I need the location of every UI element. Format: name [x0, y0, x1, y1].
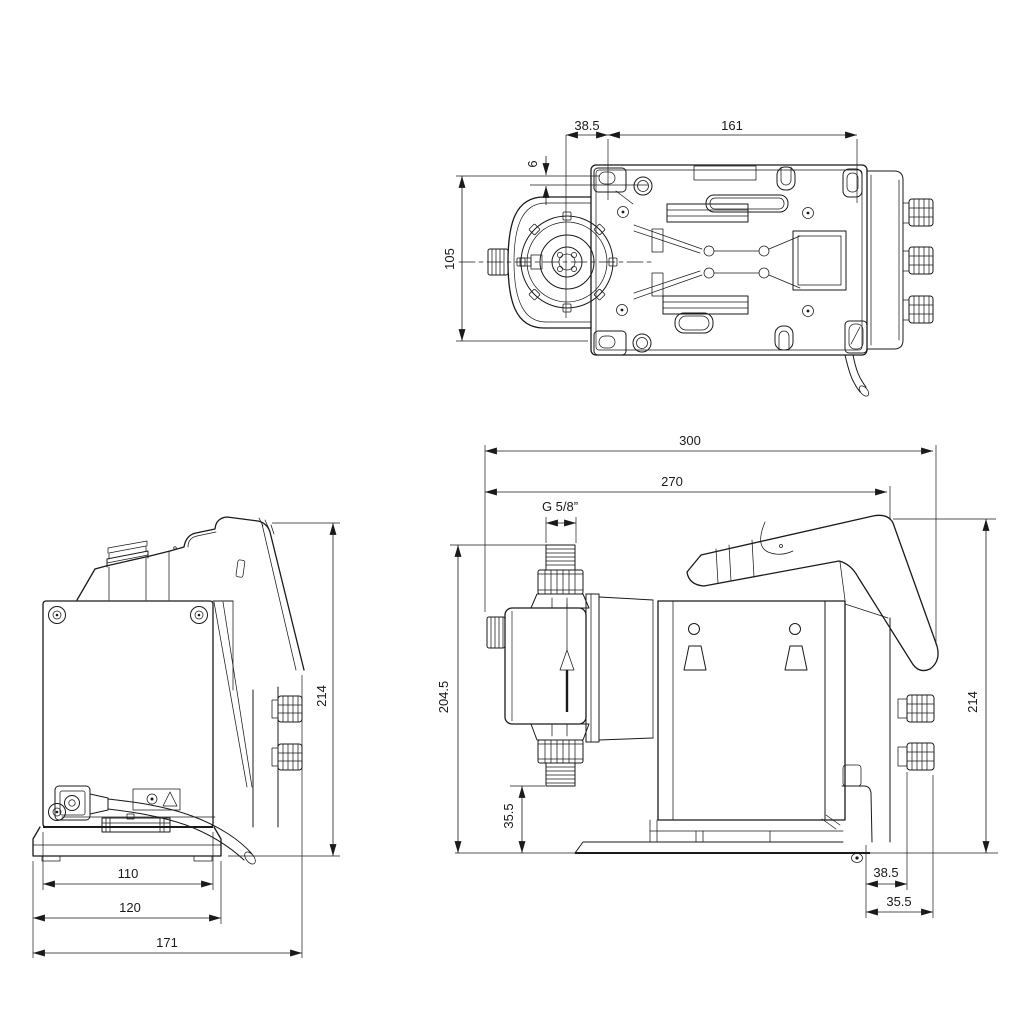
knob-ridges — [278, 744, 302, 770]
pump-body — [599, 597, 845, 842]
panel-face-seams — [716, 522, 845, 600]
dimension-171: 171 — [33, 675, 302, 958]
roof-seams — [109, 532, 216, 600]
dimension-204-5: 204.5 — [436, 545, 546, 853]
dimension-thread: G 5/8” — [542, 499, 578, 543]
dimension-214-right: 214 — [893, 519, 996, 853]
vent-valve-knob — [487, 617, 505, 648]
rear-bracket — [867, 171, 903, 349]
foot-pad — [42, 856, 60, 861]
nut-knurls — [538, 740, 583, 763]
top-housing — [77, 517, 304, 670]
rear-latch — [843, 765, 861, 786]
suction-connection — [531, 724, 589, 786]
side-body-edges — [213, 601, 278, 827]
dim-label: 105 — [442, 248, 457, 270]
knob-ridges — [907, 695, 934, 722]
base-assembly — [33, 814, 221, 861]
wall-mount-keyhole — [785, 624, 807, 671]
cable-gland-knob — [272, 744, 302, 770]
dim-label: 38.5 — [574, 118, 599, 133]
valve-flare — [531, 594, 589, 608]
power-cable — [845, 355, 871, 398]
knob-ridges — [491, 617, 503, 648]
rear-section — [822, 604, 934, 863]
cable-gland-knob — [903, 199, 933, 226]
dim-label: 171 — [156, 935, 178, 950]
dim-label: 161 — [721, 118, 743, 133]
knob-ridges — [907, 743, 934, 770]
dimension-161: 161 — [608, 118, 857, 203]
cable-gland-knob — [272, 696, 302, 722]
knob-ridges — [909, 199, 933, 226]
motor-housing — [508, 197, 591, 328]
base-plate-details — [594, 166, 867, 355]
dimension-35-5-bottom: 35.5 — [866, 775, 933, 918]
dimension-214: 214 — [228, 523, 340, 856]
dim-label: 120 — [119, 900, 141, 915]
dosing-head — [505, 594, 599, 742]
wall-mount-keyhole — [684, 624, 706, 671]
cable-gland-knob — [898, 695, 934, 722]
dim-label: 270 — [661, 474, 683, 489]
thread-lines — [546, 549, 575, 565]
cable-gland-knob — [903, 247, 933, 274]
warning-label — [133, 789, 180, 810]
base-plate — [575, 842, 870, 853]
base-block — [33, 827, 221, 856]
knob-ridges — [278, 696, 302, 722]
dim-label: 6 — [525, 160, 540, 167]
top-view: 38.5 161 6 105 — [442, 118, 933, 398]
dim-label: 214 — [965, 691, 980, 713]
technical-drawing-canvas: 38.5 161 6 105 — [0, 0, 1024, 1024]
knob-ridges — [909, 247, 933, 274]
rear-foot-bracket — [842, 786, 872, 842]
dimensional-drawing-page: 38.5 161 6 105 — [0, 0, 1024, 1024]
side-view: 300 270 G 5/8” 204.5 35.5 214 — [436, 433, 998, 918]
dimension-300: 300 — [485, 433, 936, 645]
panel-tab — [236, 560, 245, 578]
base-plate-outline — [591, 165, 867, 355]
dim-label: 35.5 — [886, 894, 911, 909]
dimension-110: 110 — [43, 832, 213, 890]
dim-label: 110 — [118, 866, 139, 881]
foot-pad — [194, 856, 212, 861]
mounting-plate — [43, 601, 213, 827]
dimension-35-5-left: 35.5 — [501, 786, 545, 853]
plug-wedge — [90, 794, 108, 814]
coupling-flange — [459, 212, 654, 312]
dim-label: 204.5 — [436, 681, 451, 714]
discharge-connection — [531, 545, 589, 608]
back-view: 214 110 120 171 — [33, 517, 340, 958]
pedestal-details — [650, 820, 843, 842]
knob-ridges — [909, 296, 933, 323]
rear-wheel — [852, 854, 863, 863]
cable-gland-knob — [898, 743, 934, 770]
plate-screws — [49, 607, 208, 821]
valve-flare — [531, 724, 589, 740]
dim-label: 38.5 — [873, 865, 898, 880]
flow-arrow-icon — [560, 604, 574, 712]
control-panel — [687, 515, 938, 670]
mains-connector — [55, 786, 108, 820]
dim-label: 35.5 — [501, 803, 516, 828]
dim-label: 300 — [679, 433, 701, 448]
warning-triangle-icon — [163, 792, 177, 806]
fill-cap — [107, 541, 148, 567]
dim-label: G 5/8” — [542, 499, 578, 514]
head-flange — [586, 594, 599, 742]
cable-gland-knob — [903, 296, 933, 323]
thread-lines — [546, 767, 575, 783]
nut-knurls — [538, 570, 583, 594]
dim-label: 214 — [314, 685, 329, 707]
